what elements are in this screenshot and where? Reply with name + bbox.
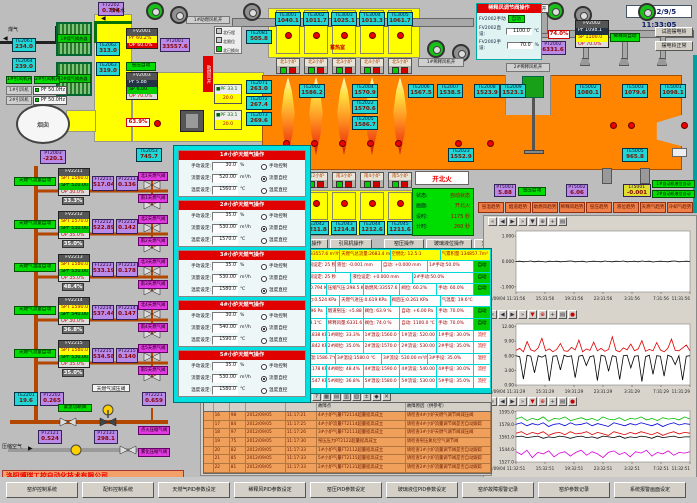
field-unit: m³/h <box>240 225 256 233</box>
temp-set-input[interactable]: 1570.0 <box>212 236 238 245</box>
field-unit: ℃ <box>240 387 256 395</box>
north-burner-block[interactable]: 北3小炉 <box>332 58 356 74</box>
gas-loop-controller: FV2215SPT 1580.0SPF 530.00OP 35.0% <box>58 340 90 368</box>
dilution-mv-input[interactable]: 70.0 <box>507 42 533 49</box>
burner-label: 北1小炉 <box>277 59 299 66</box>
regenerator-north-label: 蓄热室 <box>330 44 360 53</box>
radio-手动控制[interactable] <box>261 364 267 370</box>
alarm-header-cell: 故障原因（供参考） <box>406 403 491 411</box>
process-cell: 手动: 70.0% <box>437 307 473 318</box>
valve-indicator-dot <box>487 140 494 147</box>
valve-indicator-dot <box>369 200 376 207</box>
controller-title: FV2214 <box>59 298 89 305</box>
dilution-fan2-on-label: 2#稀释风机开 <box>506 63 550 72</box>
manual-set-input[interactable]: 30.0 <box>212 312 238 321</box>
process-row: 煤气压力:0.794 KPa压缩气压:298.5 KPa助燃风:33557.6 … <box>290 284 490 295</box>
alarm-cell: 11:17:21 <box>286 412 317 420</box>
controller-value: OP 30.0% <box>59 319 89 325</box>
level-trend-chart: 1.0000.000-1.00012/09/0411:31:5615:31:56… <box>486 228 696 308</box>
radio-温度直控[interactable] <box>261 338 267 344</box>
bottom-button-4[interactable]: 窑压PID参数设定 <box>310 482 382 498</box>
status-row: 状态:自动状态 <box>416 191 470 201</box>
svg-text:1595.0: 1595.0 <box>499 409 514 415</box>
field-label: 温度设定: <box>181 287 211 295</box>
valve-icon <box>60 418 76 426</box>
field-label: 流量设定: <box>181 375 211 383</box>
north-burner-block[interactable]: 北4小炉 <box>360 58 384 74</box>
trend-button-4[interactable]: 窑压趋势 <box>586 202 612 213</box>
field-unit: ℃ <box>240 237 256 245</box>
gas-flow-tag: FT2211517.04 <box>92 176 114 191</box>
field-label: 手动设定: <box>181 213 211 221</box>
gas-flow-tag: FT2213533.19 <box>92 262 114 277</box>
flow-set-input[interactable]: 530.00 <box>212 274 238 283</box>
north-burner-block[interactable]: 北1小炉 <box>276 58 300 74</box>
process-cell: 烟道窑压: +5.88 Pa <box>327 307 363 318</box>
temp-set-input[interactable]: 1580.0 <box>212 286 238 295</box>
manual-set-input[interactable]: 30.0 <box>212 162 238 171</box>
gas-pressure-tag: PT22110.136 <box>116 176 138 191</box>
legend-item: 北限位 <box>216 37 240 46</box>
controller-value: SPF 520.00 <box>59 183 89 190</box>
last-page-icon[interactable]: » <box>518 217 527 226</box>
zoom-icon[interactable]: ⊕ <box>538 217 547 226</box>
burner-indicator <box>373 67 380 74</box>
process-cell: 5#温设:1580.0 ℃ <box>364 377 400 388</box>
ignition-air-valve-label: 点火压缩气阀 <box>138 426 170 435</box>
north-gas-valve-label: 北2天燃气阀 <box>138 215 168 224</box>
gas-loop-controller: FV2214SPT 1590.0SPF 540.00OP 30.0% <box>58 297 90 325</box>
burner-indicator <box>345 67 352 74</box>
status-row: 计时:260 秒 <box>416 222 470 232</box>
status-row: 画面:开北火 <box>416 201 470 211</box>
process-badge: 流控 <box>474 365 490 376</box>
dilution-sp-label: FV2002直设: <box>479 25 504 37</box>
north-gas-valve-label: 北3天燃气阀 <box>138 258 168 267</box>
panel-title: 1#小炉天燃气操作 <box>179 151 305 160</box>
radio-dot <box>263 378 265 380</box>
radio-流量自控[interactable] <box>261 226 267 232</box>
dilution-mv-label: FV2002手设: <box>479 39 505 51</box>
export-icon[interactable]: ▤ <box>558 310 567 319</box>
alarm-header-cell: 故障点 <box>317 403 406 411</box>
alarm-cell: 请检查1#小炉流量调节阀是否自动跟踪 <box>406 447 491 455</box>
gas-pressure-tag: PT22130.178 <box>116 262 138 277</box>
alarm-cell: 75 <box>230 438 246 446</box>
radio-流量自控[interactable] <box>261 176 267 182</box>
process-cell: 1#手设: 30.0% <box>437 331 473 342</box>
process-badge: 自动 <box>474 307 490 318</box>
controller-value: SPF 530.00 <box>59 355 89 362</box>
step-back-icon[interactable]: ◀ <box>498 310 507 319</box>
field-unit: % <box>240 363 256 371</box>
radio-流量自控[interactable] <box>261 276 267 282</box>
process-cell: 阀位: 74.0 % <box>364 319 400 330</box>
temp-set-input[interactable]: 1560.0 <box>212 186 238 195</box>
furnace-gas-panel-3: 3#小炉天燃气操作手动设定:35.0%流量设定:530.00m³/h温度设定:1… <box>178 250 306 297</box>
svg-text:-1.000: -1.000 <box>500 285 514 291</box>
feeder-pipe <box>640 168 650 184</box>
field-unit: ℃ <box>240 187 256 195</box>
process-row: 1#压力:0.838 KPa1#阀位: 33.3%1#温设:1560.0 ℃1#… <box>290 331 490 342</box>
svg-text:9.00: 9.00 <box>504 339 514 345</box>
test-bell-button[interactable]: 试验摆电铃 <box>655 27 693 37</box>
process-header-cell: 空燃比: 12.5:1 <box>391 250 440 260</box>
controller-value: OP 35.0% <box>59 233 89 239</box>
trend-button-7[interactable]: 冷却气趋势 <box>667 202 693 213</box>
manual-set-input[interactable]: 35.0 <box>212 362 238 371</box>
furnace-te-tag: TE20061567.5 <box>408 84 434 98</box>
field-label: 手动设定: <box>181 313 211 321</box>
controller-title: FV2003 <box>127 73 157 80</box>
south-burner-block[interactable]: 南4小炉 <box>360 172 384 188</box>
svg-text:1544.0: 1544.0 <box>499 447 514 453</box>
alarm-table: 故障点故障原因（供参考）16982012/09/0511:17:214#小炉气量… <box>203 402 492 474</box>
radio-label: 温度直控 <box>269 237 303 245</box>
manual-set-input[interactable]: 35.0 <box>212 212 238 221</box>
gas-loop-mode-status: 天燃气温度自动 <box>14 263 56 272</box>
bottom-button-1[interactable]: 配料控制系统 <box>82 482 154 498</box>
svg-text:1561.0: 1561.0 <box>499 434 514 440</box>
field-label: 手动设定: <box>181 363 211 371</box>
step-back-icon[interactable]: ◀ <box>498 217 507 226</box>
process-cell: 3#手设: 35.0% <box>428 354 473 365</box>
burner-indicator <box>308 67 315 74</box>
burner-label: 北3小炉 <box>333 59 355 66</box>
flow-set-input[interactable]: 540.00 <box>212 324 238 333</box>
gas-loop-mode-status: 天燃气流量自动 <box>14 349 56 358</box>
panel-title: 2#小炉天燃气操作 <box>179 201 305 210</box>
alarm-cell: 2012/09/05 <box>246 447 286 455</box>
fv2002-controller: FV2002PF 1098.1SP 1100.0OP 70.0% <box>575 20 609 48</box>
north-burner-block[interactable]: 北2小炉 <box>304 58 328 74</box>
radio-dot <box>263 328 265 330</box>
controller-title: FV2213 <box>59 255 89 262</box>
burner-indicator <box>289 67 296 74</box>
trend-button-1[interactable]: 烟道趋势 <box>505 202 531 213</box>
radio-温度直控[interactable] <box>261 288 267 294</box>
process-row: 天燃气压力:0.524 KPa天燃气进压:0.619 KPa阀后压:0.261 … <box>290 296 490 307</box>
aux-fan-value: ■PF 33.1 <box>215 111 241 120</box>
trend-button-6[interactable]: 天燃气趋势 <box>640 202 666 213</box>
north-gas-valve-label: 北5天燃气阀 <box>138 344 168 353</box>
radio-手动控制[interactable] <box>261 264 267 270</box>
process-cell: 天燃气进压:0.619 KPa <box>340 296 389 307</box>
trend-button-3[interactable]: 稀释风趋势 <box>559 202 585 213</box>
pf-indicator <box>35 88 39 92</box>
alarm-cell: 20 <box>214 447 230 455</box>
burner-indicator <box>345 181 352 188</box>
manual-set-input[interactable]: 35.0 <box>212 262 238 271</box>
furnace-gas-panel-1: 1#小炉天燃气操作手动设定:30.0%流量设定:520.00m³/h温度设定:1… <box>178 150 306 197</box>
svg-text:7:31:56: 7:31:56 <box>653 296 669 301</box>
south-burner-block[interactable]: 南3小炉 <box>332 172 356 188</box>
field-unit: ℃ <box>240 337 256 345</box>
bottom-button-3[interactable]: 稀释风PID参数设定 <box>234 482 306 498</box>
field-unit: % <box>240 213 256 221</box>
furnace-te-tag: TE50021080.1 <box>575 84 601 98</box>
alarm-header-cell <box>214 403 230 411</box>
south-burner-block[interactable]: 南5小炉 <box>388 172 412 188</box>
dilution-sp-unit: ℃ <box>534 29 539 34</box>
alarm-cell: 请检查3#小炉流量调节阀是否自动跟踪 <box>406 473 491 474</box>
step-forward-icon[interactable]: ▶ <box>508 217 517 226</box>
controller-value: SPF 540.00 <box>59 312 89 319</box>
stirrer-shaft <box>532 98 535 150</box>
alarm-cell: 请检查窑压氮化空气调节阀 <box>406 438 491 446</box>
svg-text:15:31:56: 15:31:56 <box>536 296 555 301</box>
radio-label: 手动控制 <box>269 313 303 321</box>
filter-icon[interactable]: ▼ <box>528 310 537 319</box>
process-row: 5#压力:0.547 KPa5#阀位: 36.8%5#温设:1580.0 ℃5#… <box>290 377 490 388</box>
alarm-cell: 22 <box>214 464 230 472</box>
controller-value: OP 70.0% <box>576 42 608 48</box>
gas-loop-controller: FV2212SPT 1570.0SPF 530.00OP 35.0% <box>58 211 90 239</box>
step-forward-icon[interactable]: ▶ <box>508 310 517 319</box>
radio-手动控制[interactable] <box>261 314 267 320</box>
emergency-shutoff-label: 紧急切断阀 <box>58 404 92 412</box>
alarm-cell: 请检查2#小炉流量调节阀是否自动跟踪 <box>406 464 491 472</box>
bottom-button-2[interactable]: 天燃气PID参数设定 <box>158 482 230 498</box>
burner-indicator <box>364 67 371 74</box>
process-cell: 2#手动:50.0% <box>413 273 473 284</box>
alarm-row[interactable]: 18972012/09/0511:17:263#小炉气量FT2113超量程高成立… <box>204 429 491 438</box>
radio-label: 温度直控 <box>269 387 303 395</box>
pf-indicator <box>35 98 39 102</box>
level-auto2-status: 2#自动机液位自动 <box>652 190 695 198</box>
kiln-auto-status: 窑压自动 <box>518 187 546 196</box>
gas-regulator-label: 天燃气减压阀 <box>92 384 130 392</box>
trend-button-2[interactable]: 助燃风趋势 <box>532 202 558 213</box>
atomizing-air-valve-label: 雾化压缩气阀 <box>138 448 170 457</box>
temp-set-input[interactable]: 1590.0 <box>212 336 238 345</box>
bottom-button-5[interactable]: 玻璃液位PID参数设定 <box>386 482 458 498</box>
radio-温度直控[interactable] <box>261 388 267 394</box>
flow-set-input[interactable]: 530.00 <box>212 374 238 383</box>
alarm-cell: 请检查4#小炉天燃气调节阀减压阀 <box>406 412 491 420</box>
dilution-auto-button[interactable]: 自动 <box>508 15 525 23</box>
controller-value: PF 60.2% <box>127 36 157 43</box>
radio-label: 流量自控 <box>269 225 303 233</box>
temp-set-input[interactable]: 1580.0 <box>212 386 238 395</box>
process-cell: 助燃风:33557.6 m³/h <box>364 284 400 295</box>
bell-normal-button[interactable]: 摆电铃正常 <box>655 41 693 51</box>
valve-indicator-dot <box>367 140 374 147</box>
radio-手动控制[interactable] <box>261 164 267 170</box>
furnace-te-tag: TE5005965.8 <box>622 148 648 162</box>
filter-icon[interactable]: ▼ <box>528 217 537 226</box>
svg-text:1527.0: 1527.0 <box>499 460 514 466</box>
svg-text:1.000: 1.000 <box>502 234 515 240</box>
aux-fan-block: ■PF 33.120.0 <box>214 84 242 104</box>
alarm-cell: 16 <box>214 412 230 420</box>
legend-square <box>216 46 222 52</box>
process-cell: 5#手设: 35.0% <box>437 377 473 388</box>
controller-value: SPT 1560.0 <box>59 176 89 183</box>
panel-title: 4#小炉天燃气操作 <box>179 301 305 310</box>
aux-fan-value: ■PF 33.1 <box>215 85 241 94</box>
field-unit: m³/h <box>240 175 256 183</box>
alarm-row[interactable]: 19752012/09/0511:17:30窑压压力PT2122超量程高成立请检… <box>204 438 491 447</box>
svg-text:23:32:51: 23:32:51 <box>594 466 613 471</box>
flue-duct <box>66 110 96 132</box>
process-badge: 自动 <box>474 273 490 284</box>
radio-手动控制[interactable] <box>261 214 267 220</box>
aux-fan-value: 20.0 <box>215 94 241 103</box>
export-icon[interactable]: ▤ <box>558 217 567 226</box>
pt2121-tag: PT21210.524 <box>38 430 62 444</box>
bottom-button-7[interactable]: 窑炉参数记录 <box>538 482 610 498</box>
process-header-cell: 气累积量:134857.7m³ <box>441 250 490 260</box>
alarm-row[interactable]: 22812012/09/0511:17:332#小炉气量FT2131超量程高成立… <box>204 464 491 473</box>
alarm-cell: 11:17:33 <box>286 473 317 474</box>
north-regenerator-te-tag: TE30031025.1 <box>331 12 357 26</box>
alarm-header-cell <box>230 403 246 411</box>
furnace-te-tag: TE20091523.1 <box>500 84 526 98</box>
valve-indicator-dot <box>339 140 346 147</box>
legend-item: 北行程 <box>216 28 240 37</box>
dilution-sp-input[interactable]: 1100.0 <box>506 28 532 35</box>
alarm-cell <box>204 429 214 437</box>
te2201-tag: TE220119.6 <box>14 392 38 406</box>
alarm-row[interactable]: 21852012/09/0511:17:335#小炉气量FT2115超量程高成立… <box>204 455 491 464</box>
flow-set-input[interactable]: 530.00 <box>212 224 238 233</box>
bottom-button-0[interactable]: 窑炉控制系统 <box>6 482 78 498</box>
south-gas-valve-label: 南1天燃气阀 <box>138 194 168 203</box>
soft-water-pipe <box>94 21 132 24</box>
alarm-row[interactable]: ▶23832012/09/0511:17:333#小炉气量FT2113超量程高成… <box>204 473 491 474</box>
south-gas-valve-label: 南2天燃气阀 <box>138 237 168 246</box>
south-regenerator-te-tag: TE20441212.6 <box>359 221 385 235</box>
field-unit: m³/h <box>240 275 256 283</box>
field-unit: ℃ <box>240 287 256 295</box>
field-label: 温度设定: <box>181 187 211 195</box>
field-unit: % <box>240 313 256 321</box>
fan1-on-status: 1#引风机开 <box>6 76 32 84</box>
marker-icon[interactable]: + <box>548 310 557 319</box>
svg-text:3:31:29: 3:31:29 <box>624 389 640 394</box>
bottom-button-8[interactable]: 系统报警画面设定 <box>614 482 686 498</box>
field-unit: m³/h <box>240 325 256 333</box>
valve-indicator-dot <box>397 200 404 207</box>
process-data-panel: 助燃风量:33557.6 m³/h天燃气总流量:2683.4 m³/h空燃比: … <box>288 248 492 394</box>
furnace-gas-panel-2: 2#小炉天燃气操作手动设定:35.0%流量设定:530.00m³/h温度设定:1… <box>178 200 306 247</box>
burner-indicator <box>392 67 399 74</box>
process-cell: 5#流设: 530.00 m³/h <box>400 377 436 388</box>
alarm-cell: 窑压压力PT2122超量程高成立 <box>317 438 406 446</box>
alarm-row[interactable]: 17842012/09/0511:17:254#小炉流量FT2114超量程高成立… <box>204 421 491 430</box>
furnace-te-tag: TE2073269.6 <box>246 112 272 126</box>
trend-button-0[interactable]: 窑温趋势 <box>478 202 504 213</box>
controller-value: OP 70.0% <box>127 94 157 100</box>
burner-indicator <box>392 181 399 188</box>
furnace-te-tag: TE20081523.9 <box>474 84 500 98</box>
gas-valve-position: 35.0% <box>62 240 84 248</box>
north-burner-block[interactable]: 北5小炉 <box>388 58 412 74</box>
te2062-tag: TE2062313.0 <box>96 42 120 56</box>
svg-text:0.00: 0.00 <box>504 383 514 389</box>
zoom-icon[interactable]: ⊕ <box>538 310 547 319</box>
process-cell: 阀位: 63.9 % <box>364 307 400 318</box>
fan-name-label: 1#引风机 <box>6 86 32 95</box>
process-badge: 自动 <box>474 284 490 295</box>
kiln-pressure-auto-status: 窑压自动 <box>126 62 156 71</box>
furnace-status-box: 状态:自动状态画面:开北火设时:1175 秒计时:260 秒 <box>412 188 474 236</box>
alarm-cell: 11:17:25 <box>286 421 317 429</box>
controller-value: SPT 1590.0 <box>59 305 89 312</box>
radio-流量自控[interactable] <box>261 376 267 382</box>
alarm-cell <box>204 455 214 463</box>
process-cell: 气温度: 19.6℃ <box>441 296 490 307</box>
furnace-te-tag: TE20231552.9 <box>448 148 474 162</box>
burner-indicator <box>401 181 408 188</box>
process-row: 温度:1098.1℃稀释风量:6331.6 m³/h阀位: 74.0 %自动: … <box>290 319 490 330</box>
alarm-cell: 83 <box>230 473 246 474</box>
alarm-cell <box>204 421 214 429</box>
alarm-row[interactable]: 16982012/09/0511:17:214#小炉气量FT2114超量程高成立… <box>204 412 491 421</box>
valve-indicator-dot <box>397 32 404 39</box>
trend-button-5[interactable]: 液位趋势 <box>613 202 639 213</box>
marker-icon[interactable]: + <box>548 217 557 226</box>
flow-set-input[interactable]: 520.00 <box>212 174 238 183</box>
field-unit: m³/h <box>240 375 256 383</box>
last-page-icon[interactable]: » <box>518 310 527 319</box>
dilution-mv-unit: % <box>535 43 539 48</box>
compressed-air-label: 压缩空气 <box>2 443 30 451</box>
field-label: 手动设定: <box>181 263 211 271</box>
controller-title: FV2215 <box>59 341 89 348</box>
alarm-cell: 11:17:26 <box>286 429 317 437</box>
process-cell: 液位: -0.001 mm <box>336 261 381 272</box>
north-regenerator-te-tag: TE30051061.7 <box>387 12 413 26</box>
alarm-cell: 5#小炉气量FT2115超量程高成立 <box>317 455 406 463</box>
valve-indicator-dot <box>154 120 161 127</box>
burner-indicator <box>373 181 380 188</box>
burner-indicator <box>336 67 343 74</box>
process-header-cell: 天燃气总流量:2683.4 m³/h <box>340 250 389 260</box>
bottom-button-6[interactable]: 窑炉故障报警记录 <box>462 482 534 498</box>
aux-fan-block: ■PF 33.120.0 <box>214 110 242 130</box>
valve-indicator-dot <box>311 140 318 147</box>
radio-流量自控[interactable] <box>261 326 267 332</box>
alarm-cell: 23 <box>214 473 230 474</box>
alarm-row[interactable]: 20822012/09/0511:17:331#小炉气量FT2112超量程高成立… <box>204 447 491 456</box>
svg-text:3.00: 3.00 <box>504 368 514 374</box>
fan-name-label: 2#引风机 <box>6 96 32 105</box>
process-badge: 流控 <box>474 342 490 353</box>
gas-valve-position: 35.0% <box>62 369 84 377</box>
south-gas-valve-label: 南5天燃气阀 <box>138 366 168 375</box>
fv2003-controller: FV2003PF 5.88SP 6.00OP 70.0% <box>126 72 158 100</box>
svg-text:19:31:56: 19:31:56 <box>565 296 584 301</box>
radio-温度直控[interactable] <box>261 238 267 244</box>
controller-value: OP 60.0% <box>127 43 157 49</box>
first-page-icon[interactable]: « <box>488 217 497 226</box>
gas-label: 煤气 <box>8 26 26 34</box>
controller-value: SPT 1580.0 <box>59 348 89 355</box>
comb-air-open-banner: 助燃风开 <box>203 56 213 92</box>
process-cell: 手动: 60.0% <box>437 284 473 295</box>
induced-fan-icon <box>170 6 188 24</box>
alarm-cell: 17 <box>214 421 230 429</box>
stop-icon[interactable]: ● <box>568 310 577 319</box>
controller-title: FV2001 <box>127 29 157 36</box>
furnace-te-tag: TE20071538.5 <box>437 84 463 98</box>
radio-温度直控[interactable] <box>261 188 267 194</box>
north-gas-valve-label: 北4天燃气阀 <box>138 301 168 310</box>
process-cell: 自动: +0.000 mm <box>382 261 427 272</box>
soft-water-label: 软化水 <box>110 7 136 15</box>
